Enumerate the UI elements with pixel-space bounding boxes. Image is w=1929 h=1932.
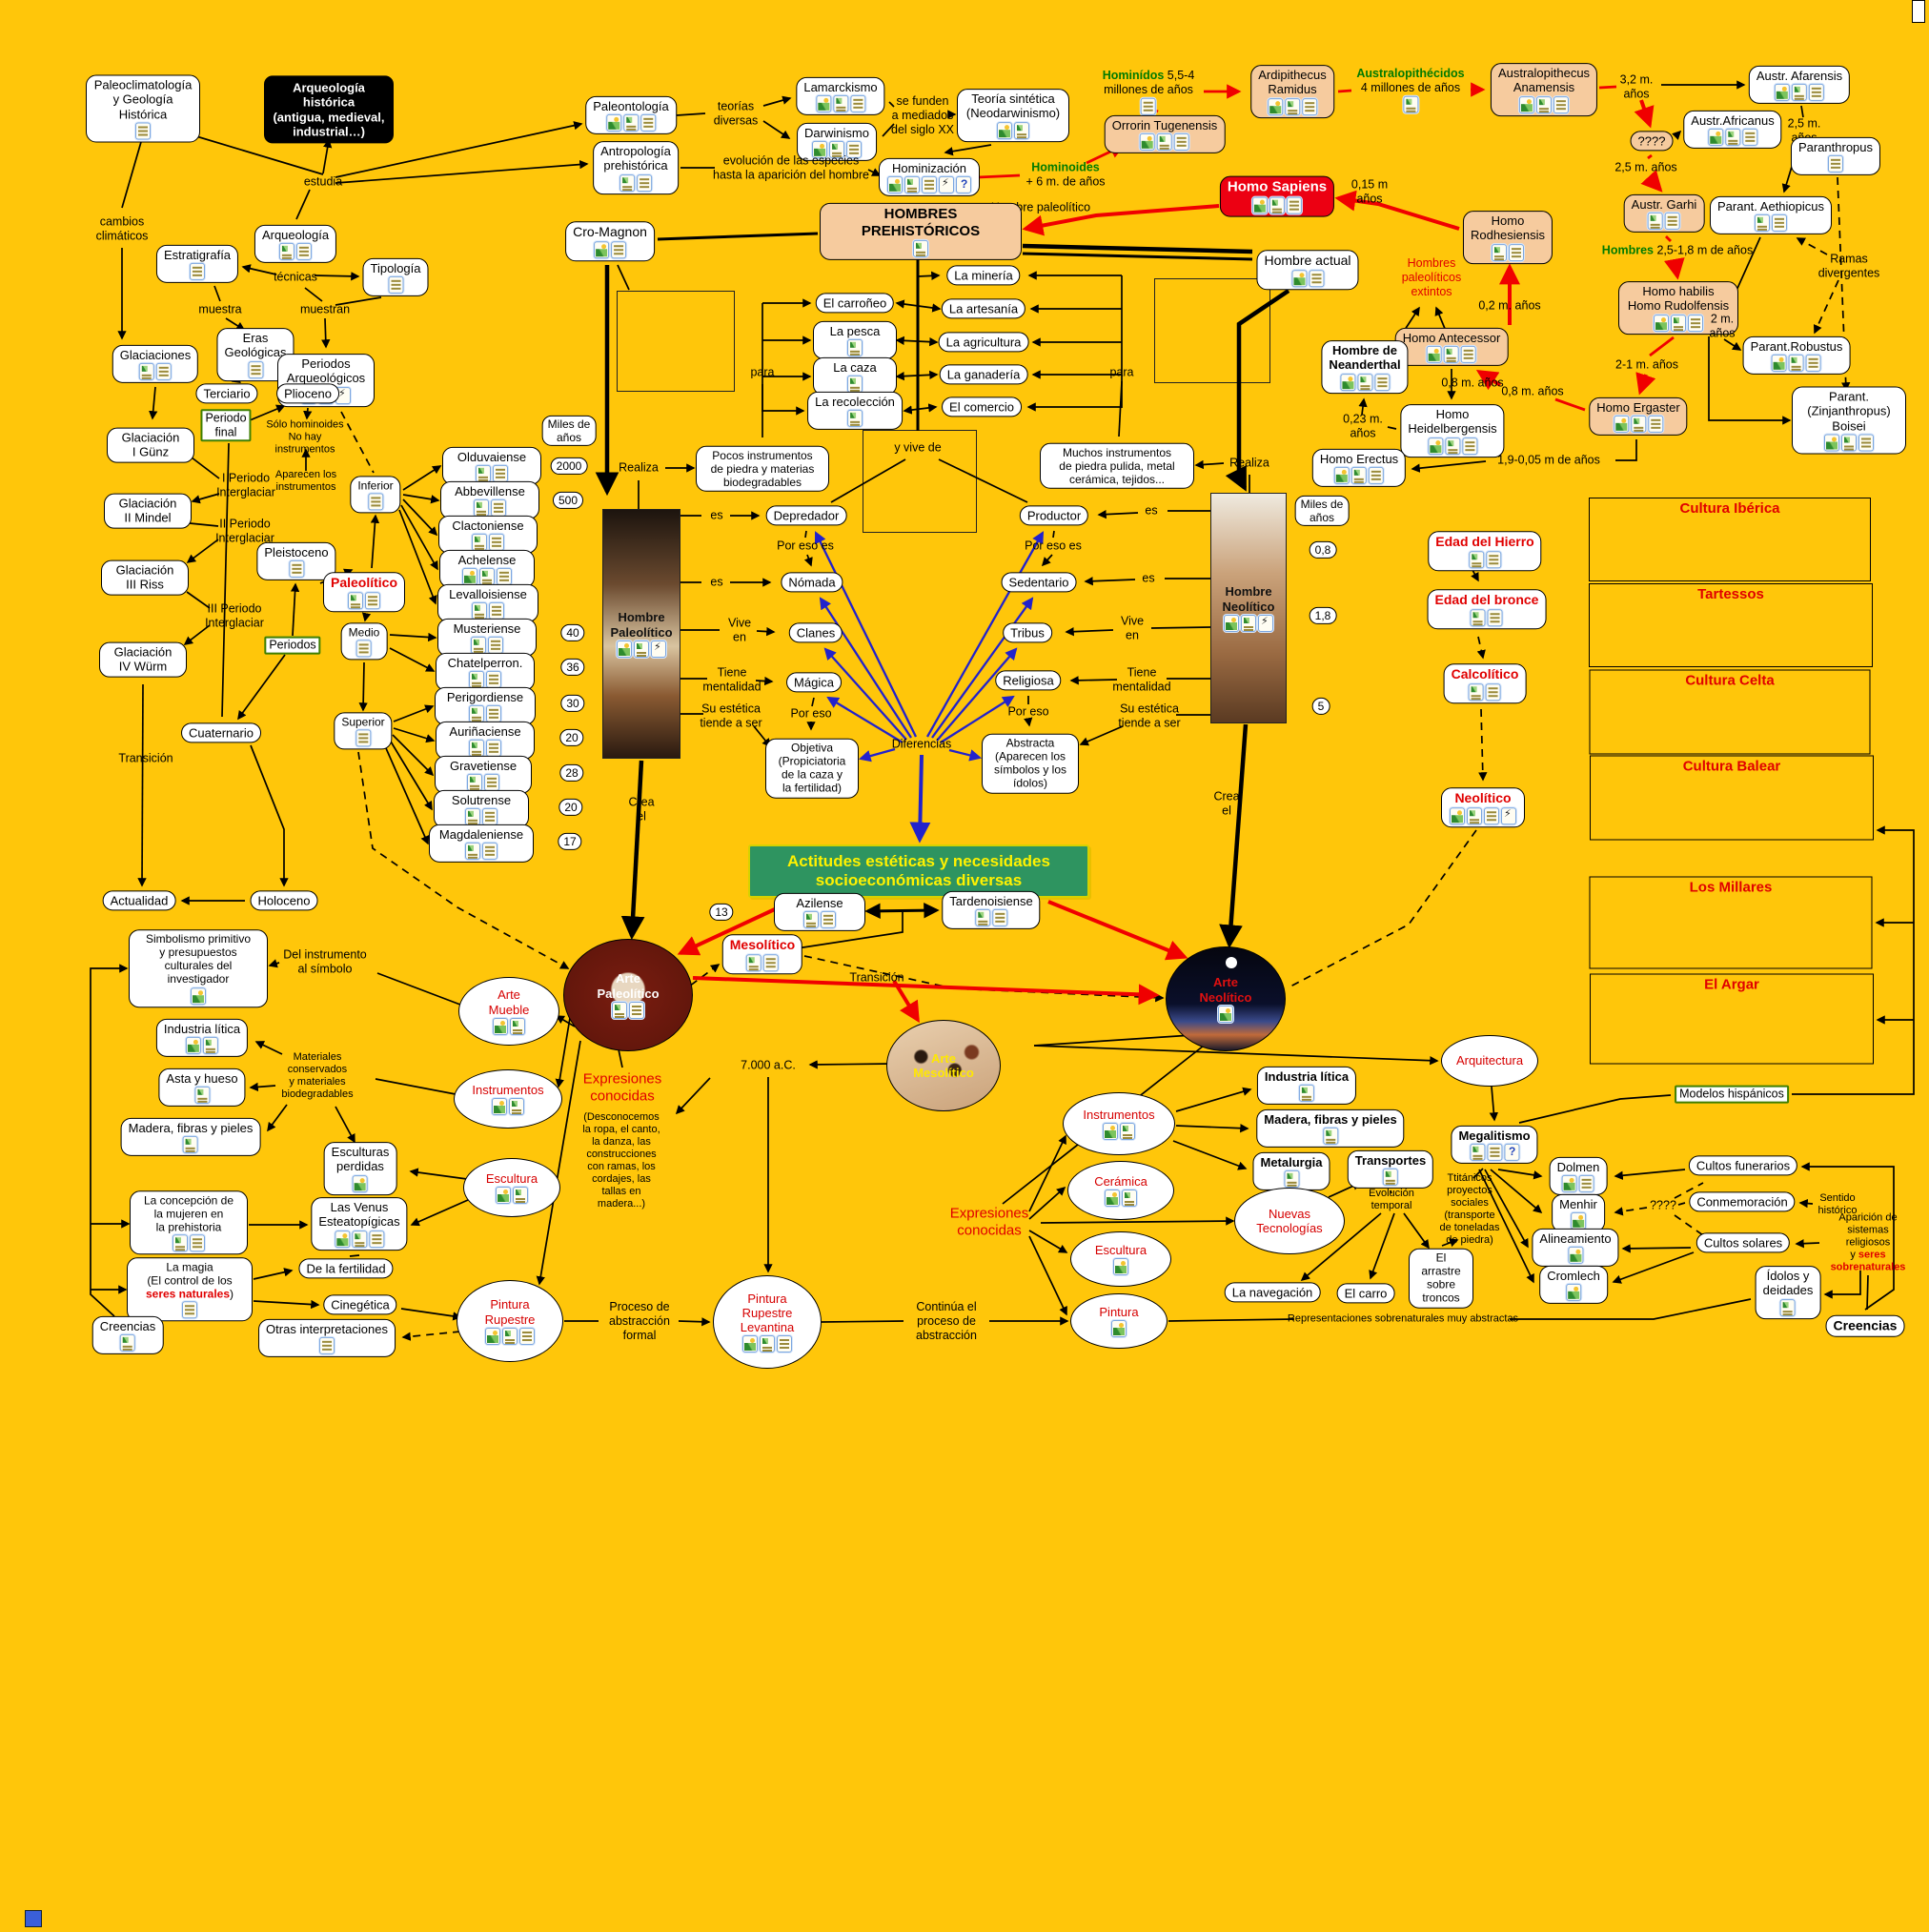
homo-erectus[interactable]: Homo Erectus: [1312, 449, 1406, 487]
doc-icon[interactable]: [1579, 1175, 1594, 1192]
estratigrafia[interactable]: Estratigrafía: [156, 245, 238, 283]
news-icon[interactable]: [502, 1328, 518, 1345]
news-icon[interactable]: [479, 568, 495, 585]
antropologia-prehistorica[interactable]: Antropología prehistórica: [593, 141, 679, 194]
paleolitico[interactable]: Paleolítico: [323, 572, 405, 612]
doc-icon[interactable]: [486, 671, 501, 688]
homo-sapiens[interactable]: Homo Sapiens: [1220, 176, 1334, 217]
pintura-rupestre[interactable]: Pintura Rupestre: [457, 1280, 563, 1362]
homo-antecessor[interactable]: Homo Antecessor: [1395, 328, 1509, 366]
run-icon[interactable]: [1258, 615, 1273, 632]
paranthropus[interactable]: Paranthropus: [1791, 137, 1880, 175]
doc-icon[interactable]: [992, 909, 1007, 926]
news-icon[interactable]: [1471, 609, 1486, 626]
news-icon[interactable]: [183, 1136, 198, 1153]
img-icon[interactable]: [1450, 807, 1465, 824]
news-icon[interactable]: [476, 465, 491, 482]
news-icon[interactable]: [1631, 416, 1646, 433]
asta-y-hueso[interactable]: Asta y hueso: [158, 1068, 245, 1107]
news-icon[interactable]: [472, 602, 487, 620]
img-icon[interactable]: [1224, 615, 1239, 632]
la-recoleccion[interactable]: La recolección: [807, 392, 903, 430]
news-icon[interactable]: [1536, 96, 1552, 113]
news-icon[interactable]: [1299, 1085, 1314, 1102]
conmemoracion[interactable]: Conmemoración: [1689, 1191, 1795, 1211]
transportes[interactable]: Transportes: [1348, 1150, 1433, 1189]
doc-icon[interactable]: [763, 954, 779, 971]
creencias-der[interactable]: Creencias: [1826, 1315, 1905, 1337]
doc-icon[interactable]: [1174, 133, 1189, 151]
doc-icon[interactable]: [355, 730, 371, 747]
calcolitico[interactable]: Calcolítico: [1444, 663, 1527, 703]
news-icon[interactable]: [469, 705, 484, 722]
news-icon[interactable]: [194, 1087, 210, 1104]
glaciaciones[interactable]: Glaciaciones: [112, 345, 198, 383]
homo-ergaster[interactable]: Homo Ergaster: [1589, 397, 1687, 436]
depredador[interactable]: Depredador: [766, 505, 847, 525]
doc-icon[interactable]: [489, 534, 504, 551]
doc-icon[interactable]: [1487, 1144, 1502, 1161]
cultos-solares[interactable]: Cultos solares: [1696, 1232, 1790, 1252]
news-icon[interactable]: [847, 410, 863, 427]
news-icon[interactable]: [1648, 213, 1663, 230]
cinegetica[interactable]: Cinegética: [323, 1294, 396, 1314]
img-icon[interactable]: [997, 122, 1012, 139]
doc-icon[interactable]: [1858, 434, 1874, 451]
news-icon[interactable]: [509, 1098, 524, 1115]
news-icon[interactable]: [1122, 1190, 1137, 1207]
nuevas-tecnologias[interactable]: Nuevas Tecnologías: [1234, 1188, 1345, 1254]
news-icon[interactable]: [279, 243, 294, 260]
news-icon[interactable]: [1725, 129, 1740, 146]
doc-icon[interactable]: [489, 602, 504, 620]
img-icon[interactable]: [1111, 1320, 1127, 1337]
la-caza[interactable]: La caza: [813, 357, 897, 396]
parant-zinjanthropus[interactable]: Parant. (Zinjanthropus) Boisei: [1792, 387, 1906, 455]
doc-icon[interactable]: [1369, 467, 1384, 484]
news-icon[interactable]: [634, 641, 649, 658]
muchos-instrumentos[interactable]: Muchos instrumentos de piedra pulida, me…: [1040, 443, 1194, 489]
pocos-instrumentos[interactable]: Pocos instrumentos de piedra y materias …: [696, 446, 829, 492]
doc-icon[interactable]: [629, 1002, 644, 1019]
news-icon[interactable]: [139, 363, 154, 380]
img-icon[interactable]: [1566, 1284, 1581, 1301]
cromlech[interactable]: Cromlech: [1539, 1266, 1608, 1304]
pintura[interactable]: Pintura: [1070, 1293, 1168, 1349]
news-icon[interactable]: [746, 954, 761, 971]
magdaleniense[interactable]: Magdaleniense: [429, 824, 534, 863]
news-icon[interactable]: [1792, 84, 1807, 101]
de-la-fertilidad[interactable]: De la fertilidad: [298, 1258, 393, 1278]
doc-icon[interactable]: [190, 263, 205, 280]
la-navegacion[interactable]: La navegación: [1225, 1282, 1321, 1302]
news-icon[interactable]: [1671, 315, 1686, 332]
img-icon[interactable]: [1140, 133, 1155, 151]
news-icon[interactable]: [513, 1187, 528, 1204]
actitudes-esteticas[interactable]: Actitudes estéticas y necesidades socioe…: [748, 844, 1089, 898]
news-icon[interactable]: [1284, 1170, 1299, 1188]
la-artesania[interactable]: La artesanía: [942, 298, 1025, 318]
homo-heidelbergensis[interactable]: Homo Heidelbergensis: [1400, 404, 1504, 458]
doc-icon[interactable]: [156, 363, 172, 380]
news-icon[interactable]: [1445, 437, 1460, 455]
la-agricultura[interactable]: La agricultura: [939, 332, 1029, 352]
cultura-balear[interactable]: Cultura Balear: [1590, 756, 1874, 841]
news-icon[interactable]: [1755, 214, 1770, 232]
menhir[interactable]: Menhir: [1552, 1194, 1605, 1232]
glaciacion-1-gunz[interactable]: Glaciación I Günz: [107, 428, 194, 463]
doc-icon[interactable]: [1809, 84, 1824, 101]
news-icon[interactable]: [465, 808, 480, 825]
hombre-actual[interactable]: Hombre actual: [1256, 250, 1358, 290]
neolitico[interactable]: Neolítico: [1441, 787, 1525, 827]
img-icon[interactable]: [1334, 467, 1350, 484]
news-icon[interactable]: [1241, 615, 1256, 632]
simbolismo-primitivo[interactable]: Simbolismo primitivo y presupuestos cult…: [129, 929, 268, 1007]
edad-del-bronce[interactable]: Edad del bronce: [1428, 589, 1547, 629]
img-icon[interactable]: [1571, 1212, 1586, 1230]
news-icon[interactable]: [1469, 551, 1484, 568]
hombre-paleolitico-img[interactable]: Hombre Paleolítico: [602, 509, 680, 759]
chatelperron[interactable]: Chatelperron.: [436, 653, 535, 691]
alineamiento[interactable]: Alineamiento: [1532, 1229, 1618, 1267]
img-icon[interactable]: [1105, 1190, 1120, 1207]
news-icon[interactable]: [1014, 122, 1029, 139]
escultura-der[interactable]: Escultura: [1070, 1231, 1171, 1287]
news-icon[interactable]: [348, 592, 363, 609]
holoceno[interactable]: Holoceno: [251, 890, 318, 910]
musteriense[interactable]: Musteriense: [437, 619, 537, 657]
doc-icon[interactable]: [1648, 416, 1663, 433]
orrorin-tugenensis[interactable]: Orrorin Tugenensis: [1105, 115, 1226, 153]
img-icon[interactable]: [1824, 434, 1839, 451]
doc-icon[interactable]: [1141, 97, 1156, 114]
edad-del-hierro[interactable]: Edad del Hierro: [1428, 531, 1541, 571]
news-icon[interactable]: [1323, 1128, 1338, 1145]
news-icon[interactable]: [847, 376, 863, 393]
clactoniense[interactable]: Clactoniense: [438, 516, 538, 554]
doc-icon[interactable]: [1488, 609, 1503, 626]
img-icon[interactable]: [1519, 96, 1534, 113]
img-icon[interactable]: [1113, 1258, 1128, 1275]
news-icon[interactable]: [469, 740, 484, 757]
esculturas-perdidas[interactable]: Esculturas perdidas: [324, 1142, 397, 1195]
doc-icon[interactable]: [482, 808, 497, 825]
austr-garhi[interactable]: Austr. Garhi: [1624, 194, 1705, 233]
instrumentos-der[interactable]: Instrumentos: [1063, 1092, 1175, 1155]
hombre-de-neanderthal[interactable]: Hombre de Neanderthal: [1321, 340, 1408, 394]
creencias-izq[interactable]: Creencias: [92, 1316, 164, 1354]
img-icon[interactable]: [606, 114, 621, 132]
doc-icon[interactable]: [248, 361, 263, 378]
medio[interactable]: Medio: [341, 622, 388, 660]
doc-icon[interactable]: [369, 1230, 384, 1248]
img-icon[interactable]: [816, 95, 831, 112]
img-icon[interactable]: [1708, 129, 1723, 146]
doc-icon[interactable]: [1461, 346, 1476, 363]
sedentario[interactable]: Sedentario: [1002, 572, 1077, 592]
lamarckismo[interactable]: Lamarckismo: [796, 77, 884, 115]
objetiva[interactable]: Objetiva (Propiciatoria de la caza y la …: [765, 739, 859, 799]
doc-icon[interactable]: [296, 243, 312, 260]
cro-magnon[interactable]: Cro-Magnon: [565, 221, 655, 261]
news-icon[interactable]: [467, 774, 482, 791]
magica[interactable]: Mágica: [786, 672, 842, 692]
doc-icon[interactable]: [497, 568, 512, 585]
superior[interactable]: Superior: [334, 712, 392, 749]
australopithecus-anamensis[interactable]: Australopithecus Anamensis: [1491, 63, 1597, 116]
news-icon[interactable]: [1492, 244, 1507, 261]
doc-icon[interactable]: [1484, 807, 1499, 824]
news-icon[interactable]: [847, 339, 863, 356]
la-mineria[interactable]: La minería: [946, 265, 1020, 285]
news-icon[interactable]: [1351, 467, 1367, 484]
doc-icon[interactable]: [1772, 214, 1787, 232]
img-icon[interactable]: [1340, 374, 1355, 391]
news-icon[interactable]: [465, 843, 480, 860]
doc-icon[interactable]: [135, 122, 151, 139]
news-icon[interactable]: [612, 1002, 627, 1019]
doc-icon[interactable]: [1828, 155, 1843, 173]
el-carro[interactable]: El carro: [1337, 1283, 1395, 1303]
news-icon[interactable]: [1269, 196, 1285, 214]
doc-icon[interactable]: [1309, 270, 1324, 287]
img-icon[interactable]: [335, 1230, 350, 1248]
venus-esteatopigicas[interactable]: Las Venus Esteatopígicas: [311, 1197, 407, 1251]
hombres-prehistoricos[interactable]: HOMBRES PREHISTÓRICOS: [820, 203, 1022, 260]
hombre-neolitico-img[interactable]: Hombre Neolítico: [1210, 493, 1287, 723]
doc-icon[interactable]: [1374, 374, 1390, 391]
news-icon[interactable]: [1357, 374, 1372, 391]
gravetiense[interactable]: Gravetiense: [435, 756, 532, 794]
img-icon[interactable]: [485, 1328, 500, 1345]
img-icon[interactable]: [887, 176, 903, 193]
img-icon[interactable]: [353, 1175, 368, 1192]
img-icon[interactable]: [1654, 315, 1669, 332]
news-icon[interactable]: [975, 909, 990, 926]
news-icon[interactable]: [173, 1235, 188, 1252]
doc-icon[interactable]: [821, 911, 836, 928]
news-icon[interactable]: [1841, 434, 1857, 451]
news-icon[interactable]: [1470, 1144, 1485, 1161]
arqueologia[interactable]: Arqueología: [254, 225, 336, 263]
terciario[interactable]: Terciario: [195, 383, 257, 403]
doc-icon[interactable]: [640, 114, 656, 132]
nomada[interactable]: Nómada: [781, 572, 843, 592]
img-icon[interactable]: [1562, 1175, 1577, 1192]
arte-neolitico[interactable]: Arte Neolítico: [1166, 946, 1286, 1051]
cuaternario[interactable]: Cuaternario: [181, 722, 261, 742]
img-icon[interactable]: [1614, 416, 1629, 433]
news-icon[interactable]: [833, 95, 848, 112]
cultura-celta[interactable]: Cultura Celta: [1590, 670, 1871, 755]
news-icon[interactable]: [120, 1334, 135, 1352]
concepcion-mujer[interactable]: La concepción de la mujeren en la prehis…: [130, 1190, 248, 1254]
doc-icon[interactable]: [356, 641, 372, 658]
news-icon[interactable]: [619, 174, 635, 192]
news-icon[interactable]: [803, 911, 819, 928]
news-icon[interactable]: [1285, 98, 1300, 115]
olduvaiense[interactable]: Olduvaiense: [442, 447, 541, 485]
abstracta[interactable]: Abstracta (Aparecen los símbolos y los í…: [982, 734, 1079, 794]
parant-robustus[interactable]: Parant.Robustus: [1743, 336, 1851, 375]
paleontologia[interactable]: Paleontología: [585, 96, 677, 134]
img-icon[interactable]: [462, 568, 477, 585]
tardenoisiense[interactable]: Tardenoisiense: [942, 891, 1040, 929]
religiosa[interactable]: Religiosa: [995, 670, 1061, 690]
el-carroneo[interactable]: El carroñeo: [816, 293, 894, 313]
arte-paleolitico[interactable]: Arte Paleolítico: [563, 939, 693, 1051]
industria-litica-der[interactable]: Industria lítica: [1257, 1067, 1356, 1105]
austr-africanus[interactable]: Austr.Africanus: [1683, 111, 1781, 149]
news-icon[interactable]: [904, 176, 920, 193]
help-icon[interactable]: [956, 176, 971, 193]
img-icon[interactable]: [617, 641, 632, 658]
solutrense[interactable]: Solutrense: [434, 790, 529, 828]
cultura-iberica[interactable]: Cultura Ibérica: [1589, 498, 1871, 581]
doc-icon[interactable]: [368, 494, 383, 511]
teoria-sintetica[interactable]: Teoría sintética (Neodarwinismo): [957, 89, 1069, 142]
img-icon[interactable]: [1772, 355, 1787, 372]
arte-mueble[interactable]: Arte Mueble: [458, 977, 559, 1046]
tipologia[interactable]: Tipología: [363, 258, 429, 296]
news-icon[interactable]: [1403, 95, 1418, 112]
actualidad[interactable]: Actualidad: [103, 890, 176, 910]
doc-icon[interactable]: [484, 774, 499, 791]
idolos-y-deidades[interactable]: Ídolos y deidades: [1756, 1266, 1821, 1319]
img-icon[interactable]: [1218, 1006, 1233, 1023]
doc-icon[interactable]: [365, 592, 380, 609]
img-icon[interactable]: [191, 987, 206, 1005]
doc-icon[interactable]: [190, 1235, 205, 1252]
otras-interpretaciones[interactable]: Otras interpretaciones: [258, 1319, 396, 1357]
news-icon[interactable]: [1157, 133, 1172, 151]
news-icon[interactable]: [474, 499, 489, 517]
doc-icon[interactable]: [1742, 129, 1757, 146]
doc-icon[interactable]: [1806, 355, 1821, 372]
run-icon[interactable]: [939, 176, 954, 193]
news-icon[interactable]: [1444, 346, 1459, 363]
news-icon[interactable]: [1780, 1299, 1796, 1316]
arquitectura[interactable]: Arquitectura: [1441, 1035, 1538, 1087]
levalloisiense[interactable]: Levalloisiense: [437, 584, 538, 622]
news-icon[interactable]: [469, 671, 484, 688]
img-icon[interactable]: [493, 1018, 508, 1035]
img-icon[interactable]: [1568, 1247, 1583, 1264]
run-icon[interactable]: [651, 641, 666, 658]
img-icon[interactable]: [496, 1187, 511, 1204]
doc-icon[interactable]: [1486, 683, 1501, 701]
doc-icon[interactable]: [519, 1328, 535, 1345]
img-icon[interactable]: [1775, 84, 1790, 101]
news-icon[interactable]: [1789, 355, 1804, 372]
doc-icon[interactable]: [182, 1302, 197, 1319]
plioceno[interactable]: Plioceno: [276, 383, 339, 403]
pintura-rupestre-levantina[interactable]: Pintura Rupestre Levantina: [713, 1275, 822, 1369]
el-arrastre[interactable]: El arrastre sobre troncos: [1409, 1249, 1473, 1309]
escultura-izq[interactable]: Escultura: [463, 1158, 560, 1217]
doc-icon[interactable]: [1486, 551, 1501, 568]
paleoclimatologia[interactable]: Paleoclimatología y Geología Histórica: [86, 75, 200, 143]
homo-rodhesiensis[interactable]: Homo Rodhesiensis: [1463, 211, 1553, 264]
img-icon[interactable]: [1268, 98, 1283, 115]
img-icon[interactable]: [1291, 270, 1307, 287]
news-icon[interactable]: [352, 1230, 367, 1248]
la-ganaderia[interactable]: La ganadería: [940, 364, 1028, 384]
perigordiense[interactable]: Perigordiense: [435, 687, 536, 725]
img-icon[interactable]: [1427, 346, 1442, 363]
doc-icon[interactable]: [486, 740, 501, 757]
tribus[interactable]: Tribus: [1003, 622, 1052, 642]
news-icon[interactable]: [472, 534, 487, 551]
glaciacion-4-wurm[interactable]: Glaciación IV Würm: [99, 642, 187, 678]
doc-icon[interactable]: [482, 843, 497, 860]
instrumentos-izq[interactable]: Instrumentos: [454, 1069, 562, 1129]
doc-icon[interactable]: [488, 637, 503, 654]
run-icon[interactable]: [1501, 807, 1516, 824]
img-icon[interactable]: [186, 1037, 201, 1054]
mesolitico[interactable]: Mesolítico: [722, 934, 802, 974]
doc-icon[interactable]: [1302, 98, 1317, 115]
doc-icon[interactable]: [611, 241, 626, 258]
achelense[interactable]: Achelense: [439, 550, 535, 588]
abbevillense[interactable]: Abbevillense: [440, 481, 539, 519]
doc-icon[interactable]: [1509, 244, 1524, 261]
clanes[interactable]: Clanes: [789, 622, 843, 642]
aurinaciense[interactable]: Auriñaciense: [436, 722, 535, 760]
news-icon[interactable]: [1120, 1123, 1135, 1140]
news-icon[interactable]: [510, 1018, 525, 1035]
doc-icon[interactable]: [486, 705, 501, 722]
doc-icon[interactable]: [1287, 196, 1302, 214]
dolmen[interactable]: Dolmen: [1550, 1157, 1608, 1195]
la-magia[interactable]: La magia (El control de los seres natura…: [127, 1257, 253, 1321]
glaciacion-3-riss[interactable]: Glaciación III Riss: [101, 560, 189, 596]
news-icon[interactable]: [203, 1037, 218, 1054]
doc-icon[interactable]: [777, 1335, 792, 1352]
news-icon[interactable]: [760, 1335, 775, 1352]
el-comercio[interactable]: El comercio: [942, 397, 1022, 417]
parant-aethiopicus[interactable]: Parant. Aethiopicus: [1710, 196, 1832, 234]
ceramica[interactable]: Cerámica: [1067, 1161, 1174, 1220]
el-argar[interactable]: El Argar: [1590, 974, 1874, 1065]
interrogantes-1[interactable]: ????: [1631, 131, 1674, 151]
los-millares[interactable]: Los Millares: [1590, 877, 1873, 969]
news-icon[interactable]: [913, 240, 928, 257]
megalitismo[interactable]: Megalitismo: [1451, 1126, 1537, 1164]
glaciacion-2-mindel[interactable]: Glaciación II Mindel: [104, 494, 192, 529]
madera-fibras-der[interactable]: Madera, fibras y pieles: [1256, 1109, 1404, 1148]
img-icon[interactable]: [492, 1098, 507, 1115]
industria-litica-izq[interactable]: Industria lítica: [156, 1019, 248, 1057]
doc-icon[interactable]: [491, 499, 506, 517]
ardipithecus-ramidus[interactable]: Ardipithecus Ramidus: [1250, 65, 1334, 118]
doc-icon[interactable]: [1688, 315, 1703, 332]
la-pesca[interactable]: La pesca: [813, 321, 897, 359]
doc-icon[interactable]: [319, 1337, 335, 1354]
cultos-funerarios[interactable]: Cultos funerarios: [1689, 1155, 1797, 1175]
img-icon[interactable]: [1252, 196, 1268, 214]
productor[interactable]: Productor: [1020, 505, 1088, 525]
pleistoceno[interactable]: Pleistoceno: [256, 542, 335, 580]
doc-icon[interactable]: [1665, 213, 1680, 230]
doc-icon[interactable]: [1462, 437, 1477, 455]
doc-icon[interactable]: [493, 465, 508, 482]
doc-icon[interactable]: [637, 174, 652, 192]
img-icon[interactable]: [1103, 1123, 1118, 1140]
hominizacion[interactable]: Hominización: [879, 158, 980, 196]
img-icon[interactable]: [594, 241, 609, 258]
